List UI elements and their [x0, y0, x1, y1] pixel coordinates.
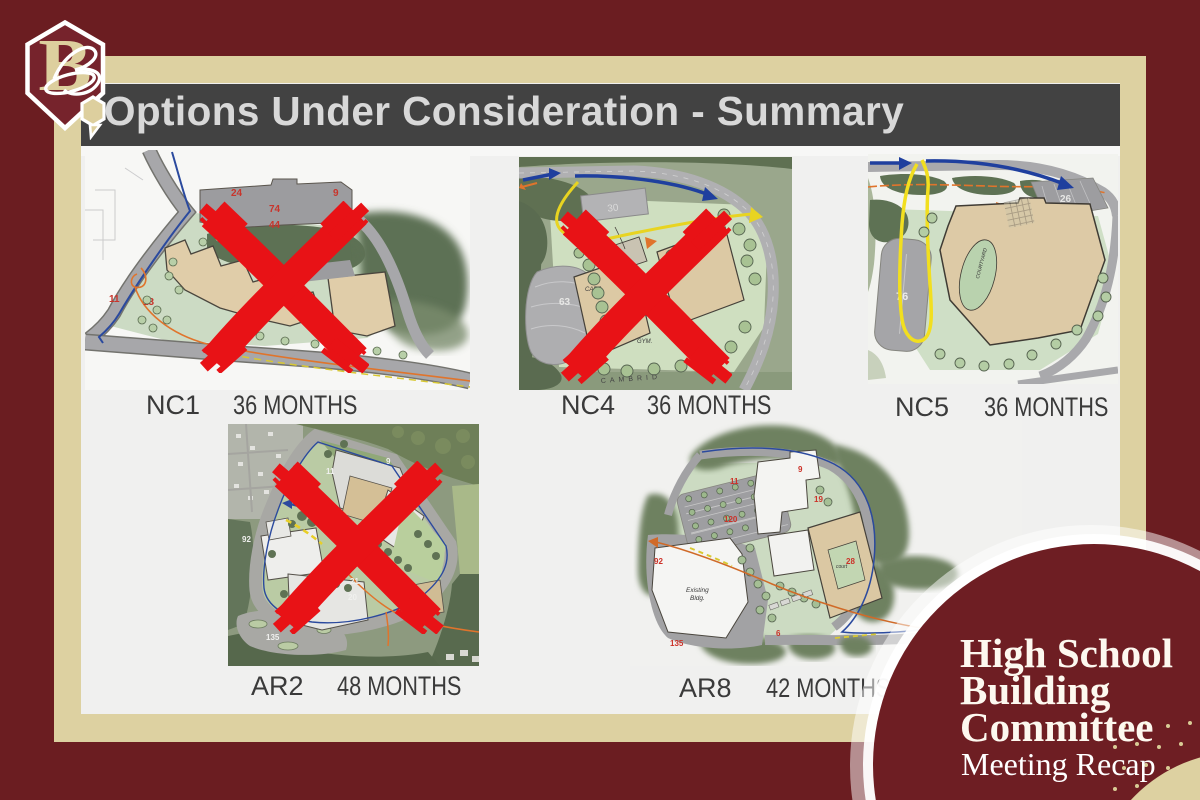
svg-text:92: 92: [242, 535, 251, 544]
svg-text:6: 6: [776, 629, 781, 638]
svg-text:Existing: Existing: [686, 587, 709, 594]
svg-text:92: 92: [654, 557, 663, 566]
svg-text:9: 9: [798, 465, 803, 474]
svg-text:Bldg.: Bldg.: [690, 595, 705, 602]
svg-text:11: 11: [109, 294, 120, 305]
svg-text:11: 11: [730, 477, 739, 486]
svg-text:9: 9: [333, 188, 339, 199]
svg-text:135: 135: [670, 639, 684, 648]
svg-text:76: 76: [896, 291, 908, 303]
svg-text:24: 24: [231, 188, 243, 199]
svg-text:19: 19: [814, 495, 823, 504]
svg-text:120: 120: [724, 515, 738, 524]
svg-text:135: 135: [266, 633, 280, 642]
